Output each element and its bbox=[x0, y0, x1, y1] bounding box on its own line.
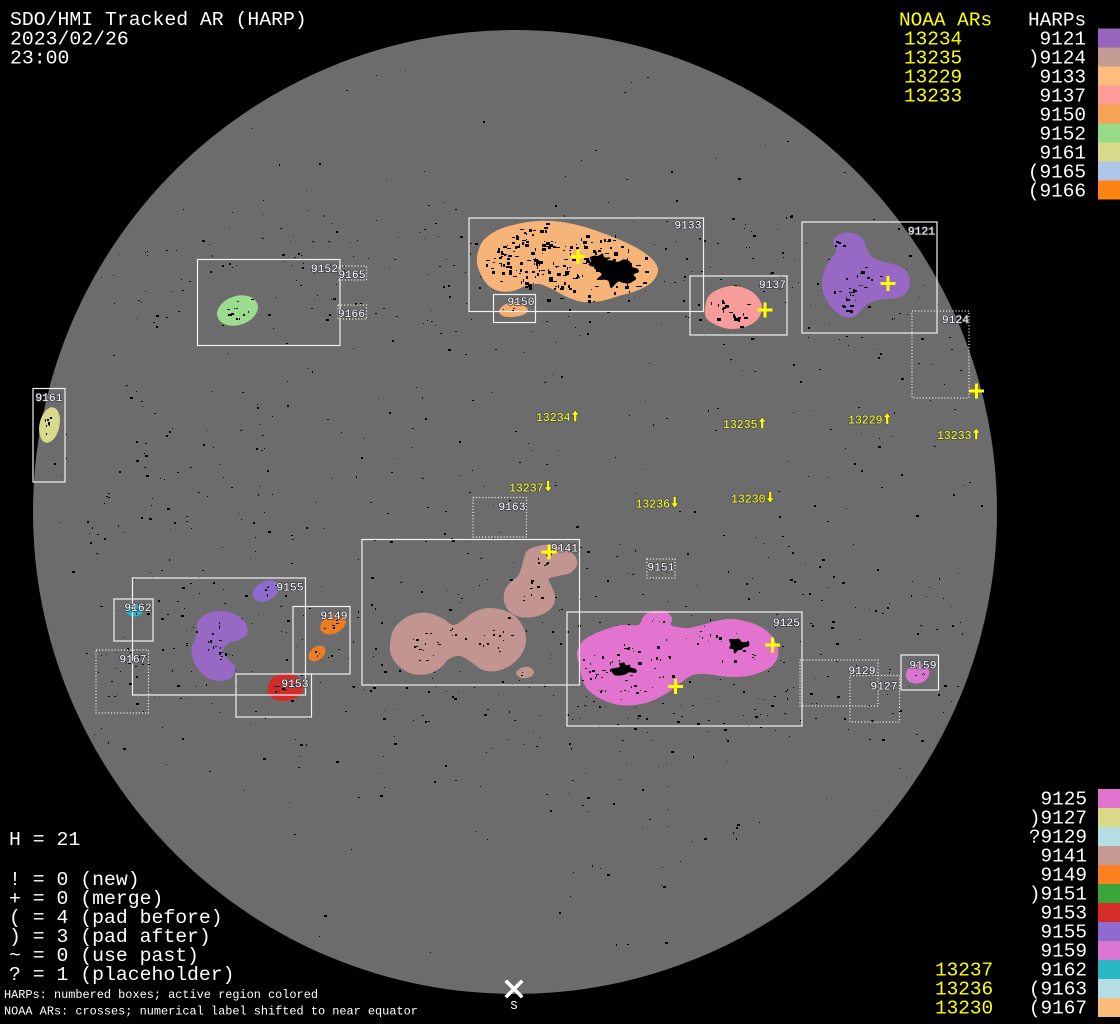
svg-text:NOAA ARs: crosses; numerical l: NOAA ARs: crosses; numerical label shift… bbox=[4, 1005, 418, 1019]
svg-text:9162: 9162 bbox=[124, 603, 151, 615]
svg-text:9152: 9152 bbox=[311, 264, 338, 276]
svg-text:9125: 9125 bbox=[773, 618, 800, 630]
svg-text:13236: 13236 bbox=[636, 499, 671, 512]
svg-text:9133: 9133 bbox=[674, 221, 701, 233]
svg-text:23:00: 23:00 bbox=[10, 48, 69, 70]
svg-text:9153: 9153 bbox=[281, 679, 308, 691]
svg-text:9159: 9159 bbox=[909, 661, 936, 673]
svg-text:13229: 13229 bbox=[848, 415, 883, 428]
svg-text:? = 1 (placeholder): ? = 1 (placeholder) bbox=[9, 964, 235, 986]
svg-text:9151: 9151 bbox=[647, 563, 674, 575]
svg-text:13235: 13235 bbox=[723, 419, 758, 432]
svg-text:9167: 9167 bbox=[119, 655, 146, 667]
svg-text:9166: 9166 bbox=[338, 309, 365, 321]
svg-text:9121: 9121 bbox=[908, 227, 935, 239]
svg-text:9155: 9155 bbox=[276, 583, 303, 595]
svg-text:9129: 9129 bbox=[848, 666, 875, 678]
svg-text:9150: 9150 bbox=[507, 297, 534, 309]
svg-text:S: S bbox=[510, 999, 517, 1013]
svg-text:13230: 13230 bbox=[935, 998, 993, 1020]
svg-text:9163: 9163 bbox=[498, 502, 525, 514]
svg-text:13233: 13233 bbox=[904, 86, 962, 108]
svg-text:9141: 9141 bbox=[551, 544, 578, 556]
svg-text:H = 21: H = 21 bbox=[9, 829, 80, 851]
svg-text:(9166: (9166 bbox=[1028, 181, 1086, 203]
svg-text:HARPs: numbered boxes; active: HARPs: numbered boxes; active region col… bbox=[4, 988, 318, 1002]
svg-text:13237: 13237 bbox=[509, 483, 544, 496]
svg-text:9149: 9149 bbox=[320, 611, 347, 623]
svg-text:9165: 9165 bbox=[338, 270, 365, 282]
svg-text:(9167: (9167 bbox=[1029, 998, 1087, 1020]
svg-text:9161: 9161 bbox=[35, 393, 62, 405]
svg-text:13234: 13234 bbox=[536, 412, 571, 425]
svg-text:9127: 9127 bbox=[870, 682, 897, 694]
svg-text:13230: 13230 bbox=[731, 494, 766, 507]
svg-text:13233: 13233 bbox=[937, 430, 972, 443]
svg-text:9137: 9137 bbox=[759, 280, 786, 292]
svg-text:9124: 9124 bbox=[942, 315, 969, 327]
